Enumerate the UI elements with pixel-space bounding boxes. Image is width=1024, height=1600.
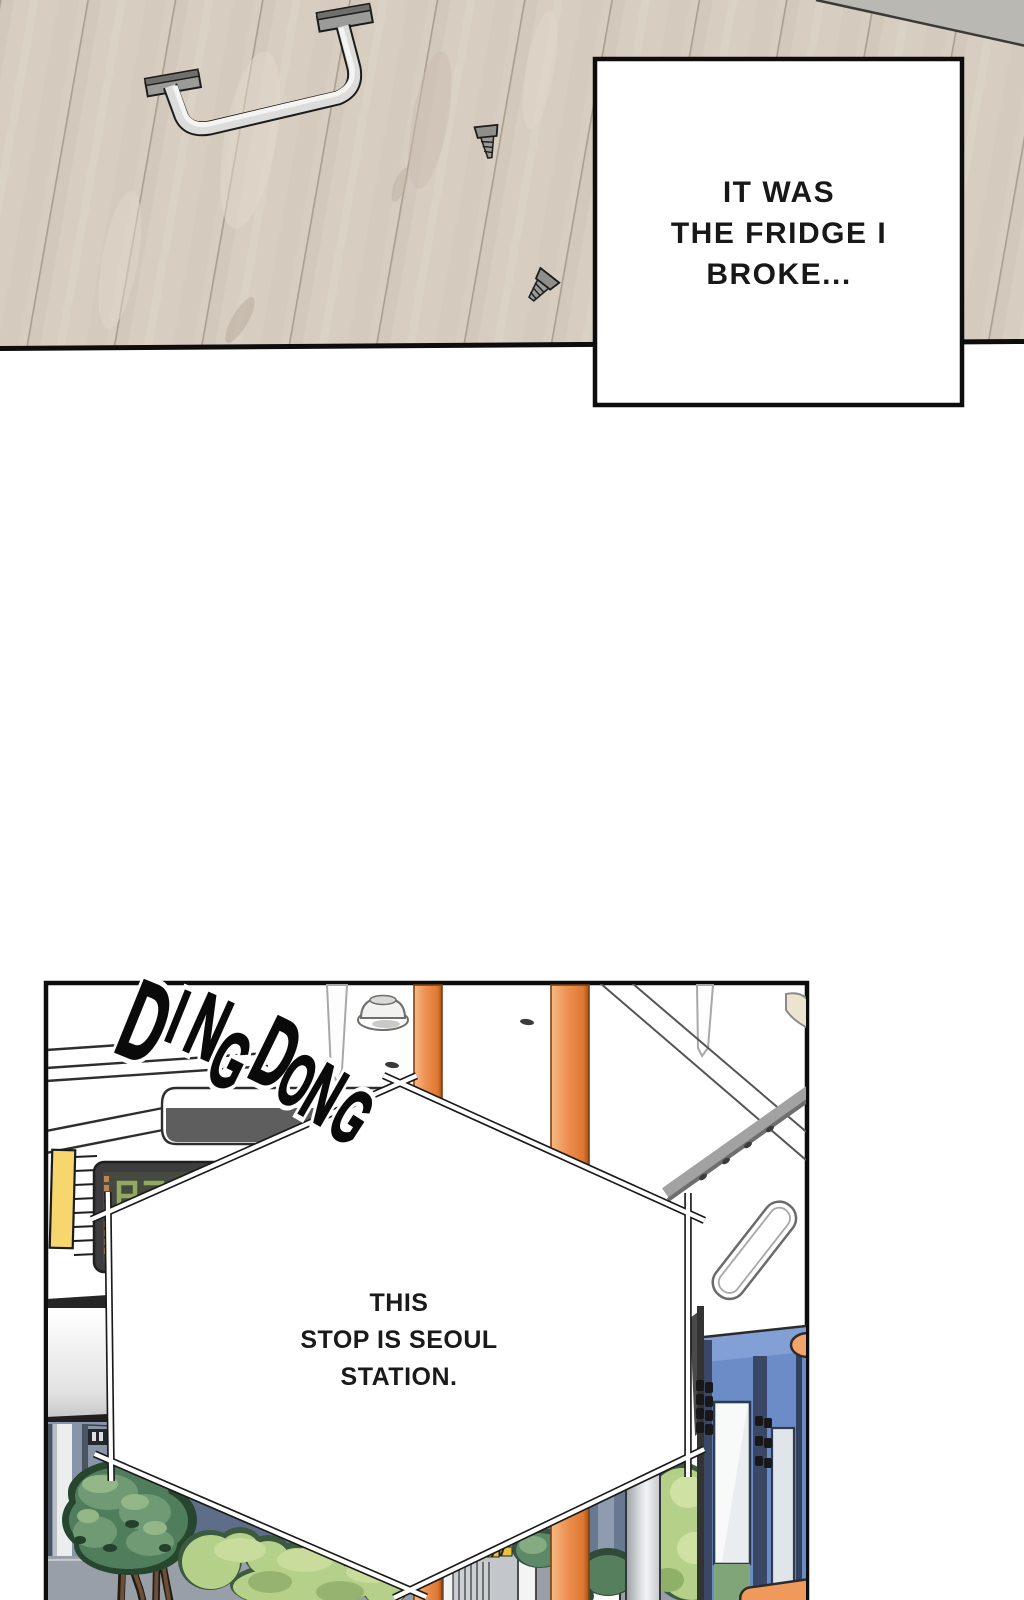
svg-text:BROKE...: BROKE...	[706, 258, 851, 291]
svg-text:THE FRIDGE I: THE FRIDGE I	[671, 217, 887, 250]
svg-text:STOP IS SEOUL: STOP IS SEOUL	[300, 1326, 497, 1354]
svg-text:THIS: THIS	[370, 1289, 429, 1317]
svg-text:STATION.: STATION.	[341, 1363, 458, 1391]
svg-text:IT WAS: IT WAS	[723, 176, 835, 209]
